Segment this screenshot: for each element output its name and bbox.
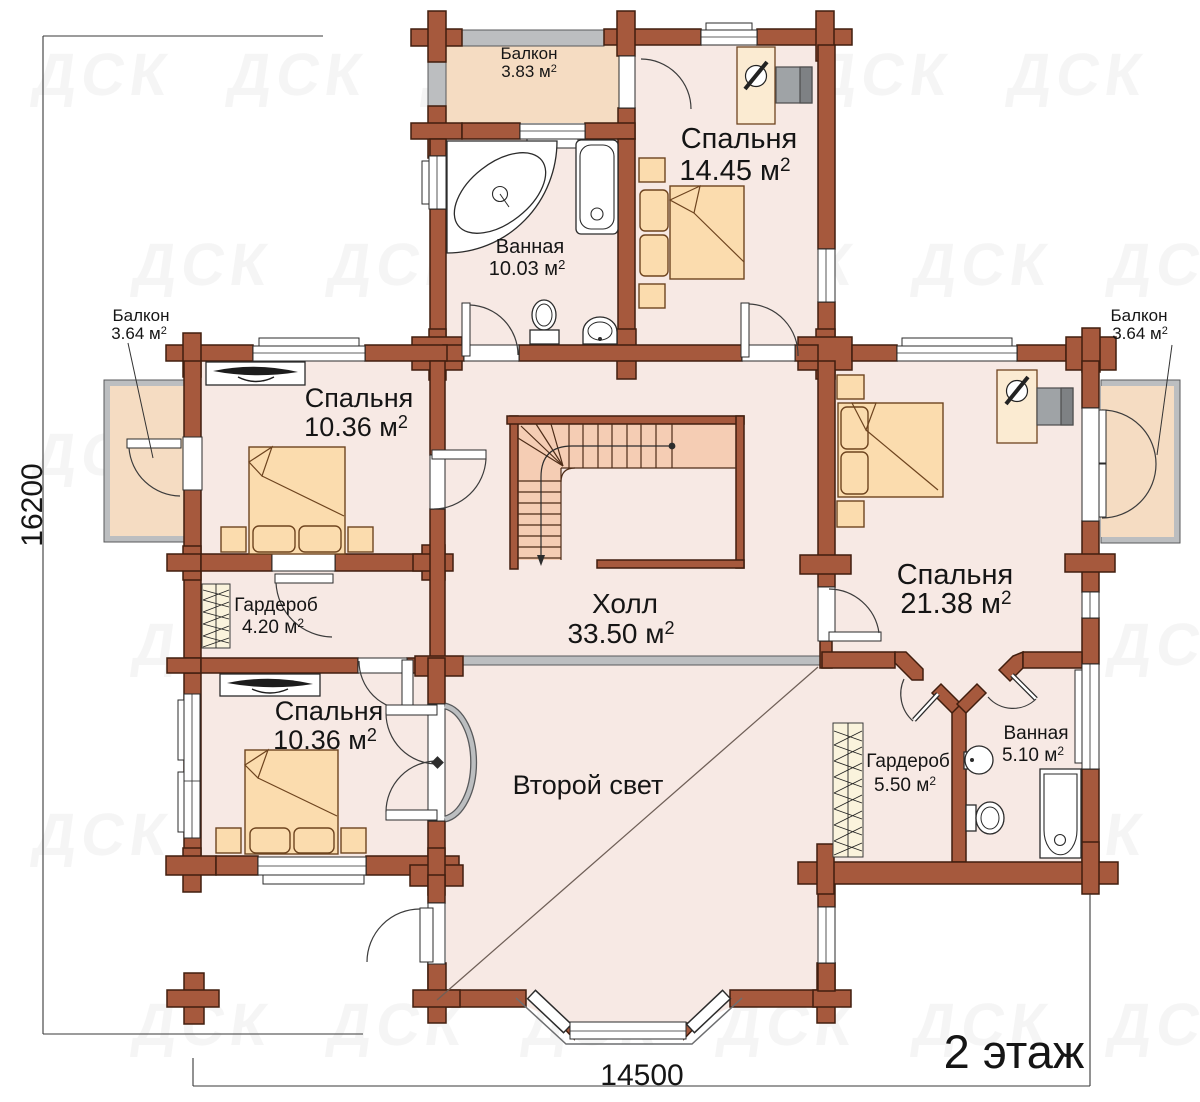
svg-text:33.50 м2: 33.50 м2 [567, 618, 674, 649]
svg-text:14500: 14500 [600, 1059, 683, 1092]
svg-text:10.36 м2: 10.36 м2 [304, 412, 408, 442]
svg-text:Второй свет: Второй свет [513, 770, 664, 800]
svg-text:10.03 м2: 10.03 м2 [489, 257, 566, 280]
svg-text:Спальня: Спальня [681, 123, 798, 155]
svg-text:Балкон: Балкон [1110, 306, 1167, 325]
svg-text:3.83 м2: 3.83 м2 [501, 62, 557, 81]
svg-text:Ванная: Ванная [496, 236, 565, 258]
svg-text:Гардероб: Гардероб [234, 595, 318, 616]
svg-text:5.10 м2: 5.10 м2 [1002, 744, 1064, 766]
svg-text:3.64 м2: 3.64 м2 [111, 324, 167, 343]
svg-text:14.45 м2: 14.45 м2 [679, 155, 790, 187]
svg-text:Балкон: Балкон [500, 44, 557, 63]
svg-text:Холл: Холл [592, 588, 658, 619]
svg-text:Спальня: Спальня [305, 383, 414, 413]
svg-text:3.64 м2: 3.64 м2 [1112, 324, 1168, 343]
svg-text:10.36 м2: 10.36 м2 [273, 725, 377, 755]
svg-text:5.50 м2: 5.50 м2 [874, 774, 936, 796]
svg-text:Гардероб: Гардероб [866, 751, 950, 772]
svg-text:Спальня: Спальня [897, 559, 1014, 591]
svg-text:21.38 м2: 21.38 м2 [900, 588, 1011, 620]
svg-text:2 этаж: 2 этаж [944, 1025, 1085, 1078]
svg-text:Балкон: Балкон [112, 306, 169, 325]
svg-text:Спальня: Спальня [275, 696, 384, 726]
svg-text:Ванная: Ванная [1003, 723, 1068, 744]
svg-text:4.20 м2: 4.20 м2 [242, 616, 304, 638]
svg-text:16200: 16200 [16, 463, 49, 546]
